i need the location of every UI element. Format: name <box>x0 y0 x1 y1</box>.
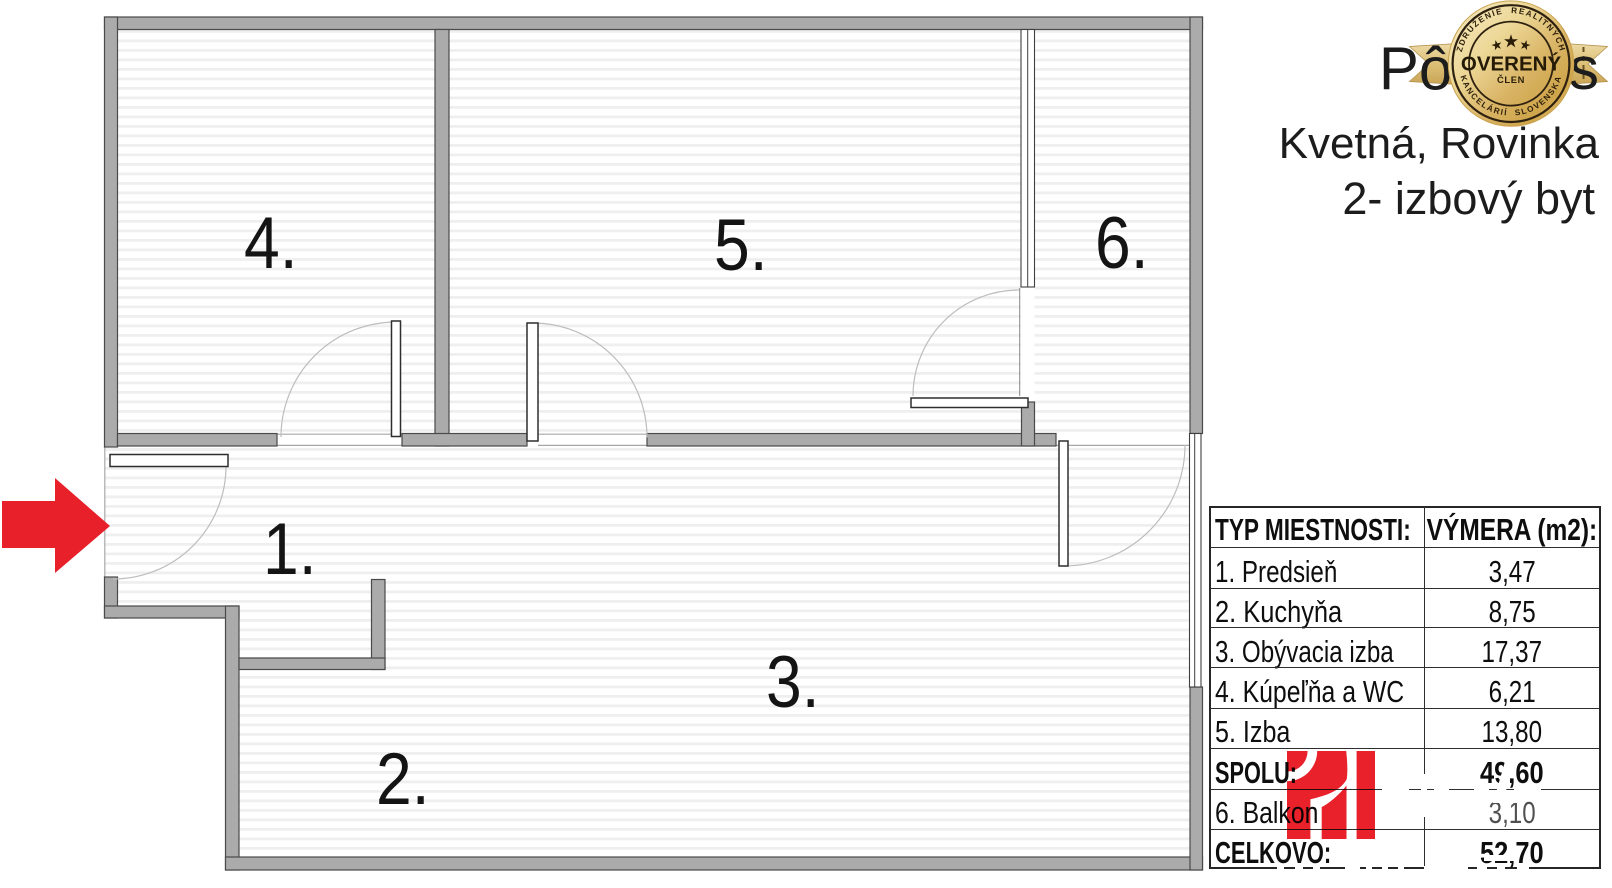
svg-text:OVERENÝ: OVERENÝ <box>1461 52 1562 76</box>
svg-text:ČLEN: ČLEN <box>1497 74 1525 85</box>
